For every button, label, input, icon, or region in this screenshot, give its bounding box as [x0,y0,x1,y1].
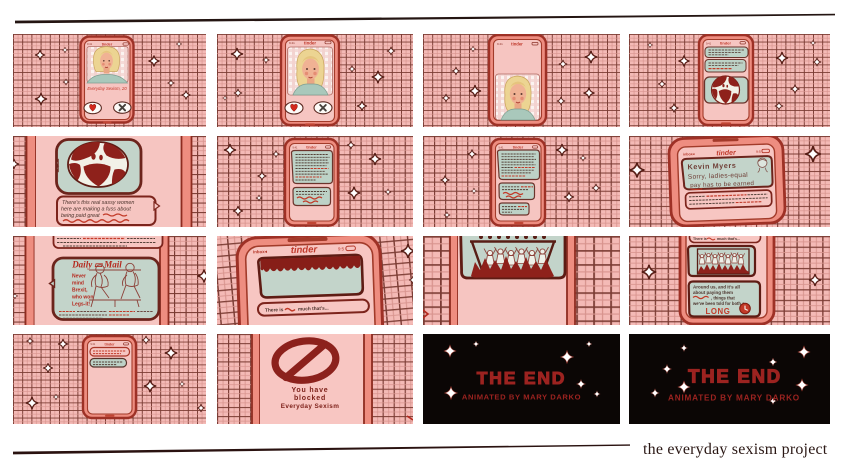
svg-text:9:41: 9:41 [87,42,93,46]
svg-text:tinder: tinder [513,146,524,150]
svg-text:9:41: 9:41 [497,42,503,46]
svg-text:9:41: 9:41 [289,41,295,45]
svg-text:9:5: 9:5 [756,150,761,154]
svg-text:much that's...: much that's... [717,237,740,241]
svg-text:Never: Never [72,274,86,280]
svg-text:There is: There is [265,307,284,314]
svg-text:blocked: blocked [294,395,326,402]
svg-text:9:5: 9:5 [338,246,345,251]
svg-text:THE END: THE END [477,368,566,388]
svg-text:ANIMATED BY MARY DARKO: ANIMATED BY MARY DARKO [668,394,800,403]
svg-text:There is: There is [693,237,707,241]
svg-text:, things that: , things that [711,296,735,301]
svg-text:tinder: tinder [720,41,732,46]
svg-text:9:41: 9:41 [91,343,96,346]
svg-text:Daily ▭ Mail: Daily ▭ Mail [71,260,122,270]
svg-text:Everyday Sexism, 20: Everyday Sexism, 20 [87,86,127,91]
svg-text:9:41: 9:41 [499,146,504,149]
svg-text:here are making a fuss about: here are making a fuss about [61,207,131,213]
svg-text:LONG: LONG [706,307,731,316]
svg-text:inbox◂: inbox◂ [683,152,696,156]
svg-text:THE END: THE END [688,366,782,387]
svg-text:9:41: 9:41 [293,146,298,149]
svg-text:Around us, and it's all: Around us, and it's all [693,285,740,290]
svg-text:tinder: tinder [511,41,523,46]
svg-text:tinder: tinder [105,342,116,346]
svg-text:tinder: tinder [304,40,316,45]
svg-text:Kevin Myers: Kevin Myers [687,161,736,172]
svg-text:ANIMATED BY MARY DARKO: ANIMATED BY MARY DARKO [462,393,581,402]
svg-text:about paying them: about paying them [693,290,733,295]
svg-text:we've been told for both a: we've been told for both a [692,301,745,306]
svg-text:being paid great: being paid great [61,213,100,219]
svg-text:mind: mind [72,281,84,287]
svg-text:tinder: tinder [306,146,317,150]
svg-text:tinder: tinder [716,150,737,158]
svg-text:Legs-it!: Legs-it! [72,302,90,308]
svg-text:tinder: tinder [102,43,113,47]
svg-text:tinder: tinder [291,244,319,256]
svg-text:much that's...: much that's... [298,306,329,313]
svg-text:9:41: 9:41 [706,41,712,45]
svg-text:Brexit,: Brexit, [72,288,88,294]
svg-text:inbox◂: inbox◂ [253,249,268,255]
svg-text:You have: You have [291,387,328,394]
svg-text:There's this real sassy women: There's this real sassy women [62,200,134,206]
svg-text:Everyday Sexism: Everyday Sexism [281,403,340,410]
